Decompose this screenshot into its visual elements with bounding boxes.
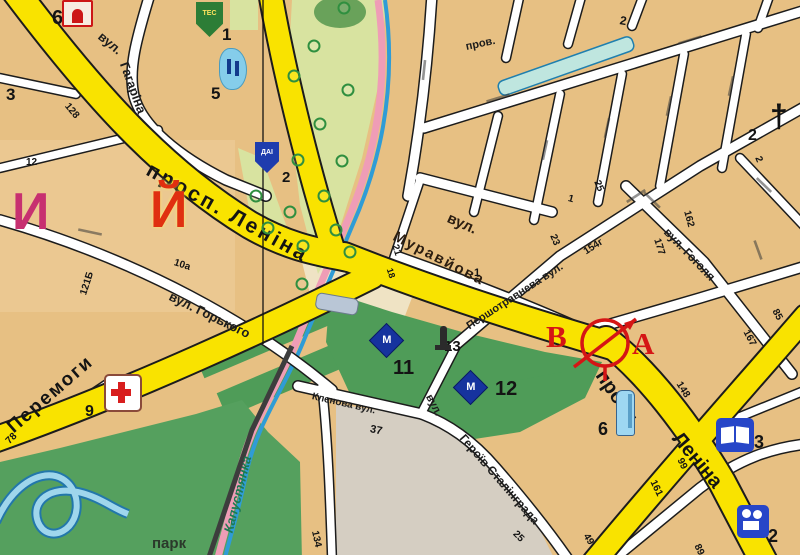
- blueMonument-icon: [219, 48, 247, 90]
- route-marker-symbol: [572, 313, 638, 383]
- street-label-muravyova: Муравйова: [391, 229, 488, 288]
- tree-icon: [342, 84, 355, 97]
- house-number: 18: [385, 267, 397, 279]
- house-number: 25: [510, 529, 525, 544]
- house-number: 23: [547, 233, 560, 247]
- museum-icon: М: [453, 370, 488, 405]
- tree-icon: [344, 246, 357, 259]
- house-number: 128: [62, 102, 80, 121]
- house-number: 25: [591, 179, 604, 193]
- house-number: 121Б: [79, 271, 96, 297]
- house-number: 37: [369, 424, 383, 437]
- redBuilding-icon: [62, 0, 93, 27]
- museum-icon-label: М: [375, 334, 398, 346]
- house-number: 9: [85, 404, 94, 420]
- street-label-prov: пров.: [465, 36, 497, 53]
- map-letter: И: [12, 186, 49, 238]
- church-icon: †: [770, 98, 800, 134]
- street-label-gogolya: вул. Гоголя: [662, 226, 718, 283]
- street-label-klenova: Кленова вул.: [311, 392, 376, 416]
- tree-icon: [308, 40, 321, 53]
- house-number: 21: [389, 243, 402, 257]
- tree-icon: [318, 190, 331, 203]
- obelisk-icon: [616, 390, 635, 436]
- house-number: 161: [648, 479, 664, 498]
- house-number: 5: [211, 85, 220, 102]
- church-icon-label: †: [770, 98, 800, 135]
- house-number: 148: [674, 380, 691, 399]
- house-number: 6: [598, 420, 608, 438]
- tree-icon: [284, 206, 297, 219]
- house-number: 1: [567, 194, 575, 205]
- house-number: 3: [6, 86, 15, 103]
- route-marker-from: В: [546, 321, 567, 352]
- house-number: 177: [651, 237, 666, 256]
- house-number: 154г: [582, 237, 605, 257]
- house-number: 12: [26, 158, 37, 168]
- house-number: 162: [681, 210, 695, 229]
- house-number: 1: [474, 268, 480, 279]
- museum-icon-label: М: [459, 381, 482, 393]
- street-label-gorkogo: вул. Горького: [167, 290, 252, 340]
- house-number: 2: [619, 14, 628, 27]
- tree-icon: [330, 224, 343, 237]
- tree-icon: [338, 2, 351, 15]
- map-letter: Й: [150, 184, 187, 236]
- street-label-geroiv-stalingrada: Героїв Сталінграда: [457, 432, 541, 526]
- house-number: 49: [581, 532, 595, 547]
- statue-icon: [434, 326, 452, 352]
- city-map-image[interactable]: просп. Ленінапросп.ЛенінаПеремогивул.Гаг…: [0, 0, 800, 555]
- tree-icon: [297, 240, 310, 253]
- house-number: 12: [495, 379, 517, 399]
- river-label-kapustyanka: Капустянка: [222, 455, 254, 534]
- tree-icon: [250, 190, 263, 203]
- greenShield-icon-label: ТЕС: [196, 10, 223, 17]
- park-label: парк: [152, 536, 186, 551]
- house-number: 2: [752, 155, 763, 164]
- street-label-gagarina: Гагаріна: [118, 60, 149, 115]
- tree-icon: [296, 278, 309, 291]
- map-overlay: просп. Ленінапросп.ЛенінаПеремогивул.Гаг…: [0, 0, 800, 555]
- house-number: 3: [754, 433, 764, 451]
- tree-icon: [262, 222, 275, 235]
- route-marker: В А: [540, 305, 670, 385]
- hospital-icon: [104, 374, 142, 412]
- greenShield-icon: ТЕС: [196, 2, 223, 37]
- house-number: 89: [692, 543, 706, 555]
- tree-icon: [288, 70, 301, 83]
- museum-icon: М: [369, 323, 404, 358]
- house-number: 2: [768, 527, 778, 545]
- house-number: 2: [282, 170, 290, 185]
- daiShield-icon: ДАІ: [255, 142, 279, 173]
- cinema-icon: [737, 505, 769, 538]
- house-number: 11: [393, 358, 414, 378]
- house-number: 167: [741, 329, 758, 348]
- tree-icon: [314, 118, 327, 131]
- road-label-peremohy: Перемоги: [4, 352, 97, 437]
- house-number: 2: [748, 128, 757, 144]
- tree-icon: [336, 155, 349, 168]
- street-label-vul-2: вул.: [445, 211, 479, 237]
- tree-icon: [292, 154, 305, 167]
- street-label-vul-3: вул.: [423, 393, 443, 418]
- street-label-vul: вул.: [96, 30, 125, 57]
- book-icon: [716, 418, 754, 452]
- house-number: 85: [770, 308, 784, 323]
- daiShield-icon-label: ДАІ: [255, 149, 279, 156]
- house-number: 10а: [172, 258, 191, 273]
- house-number: 1: [222, 26, 231, 43]
- house-number: 134: [309, 530, 322, 548]
